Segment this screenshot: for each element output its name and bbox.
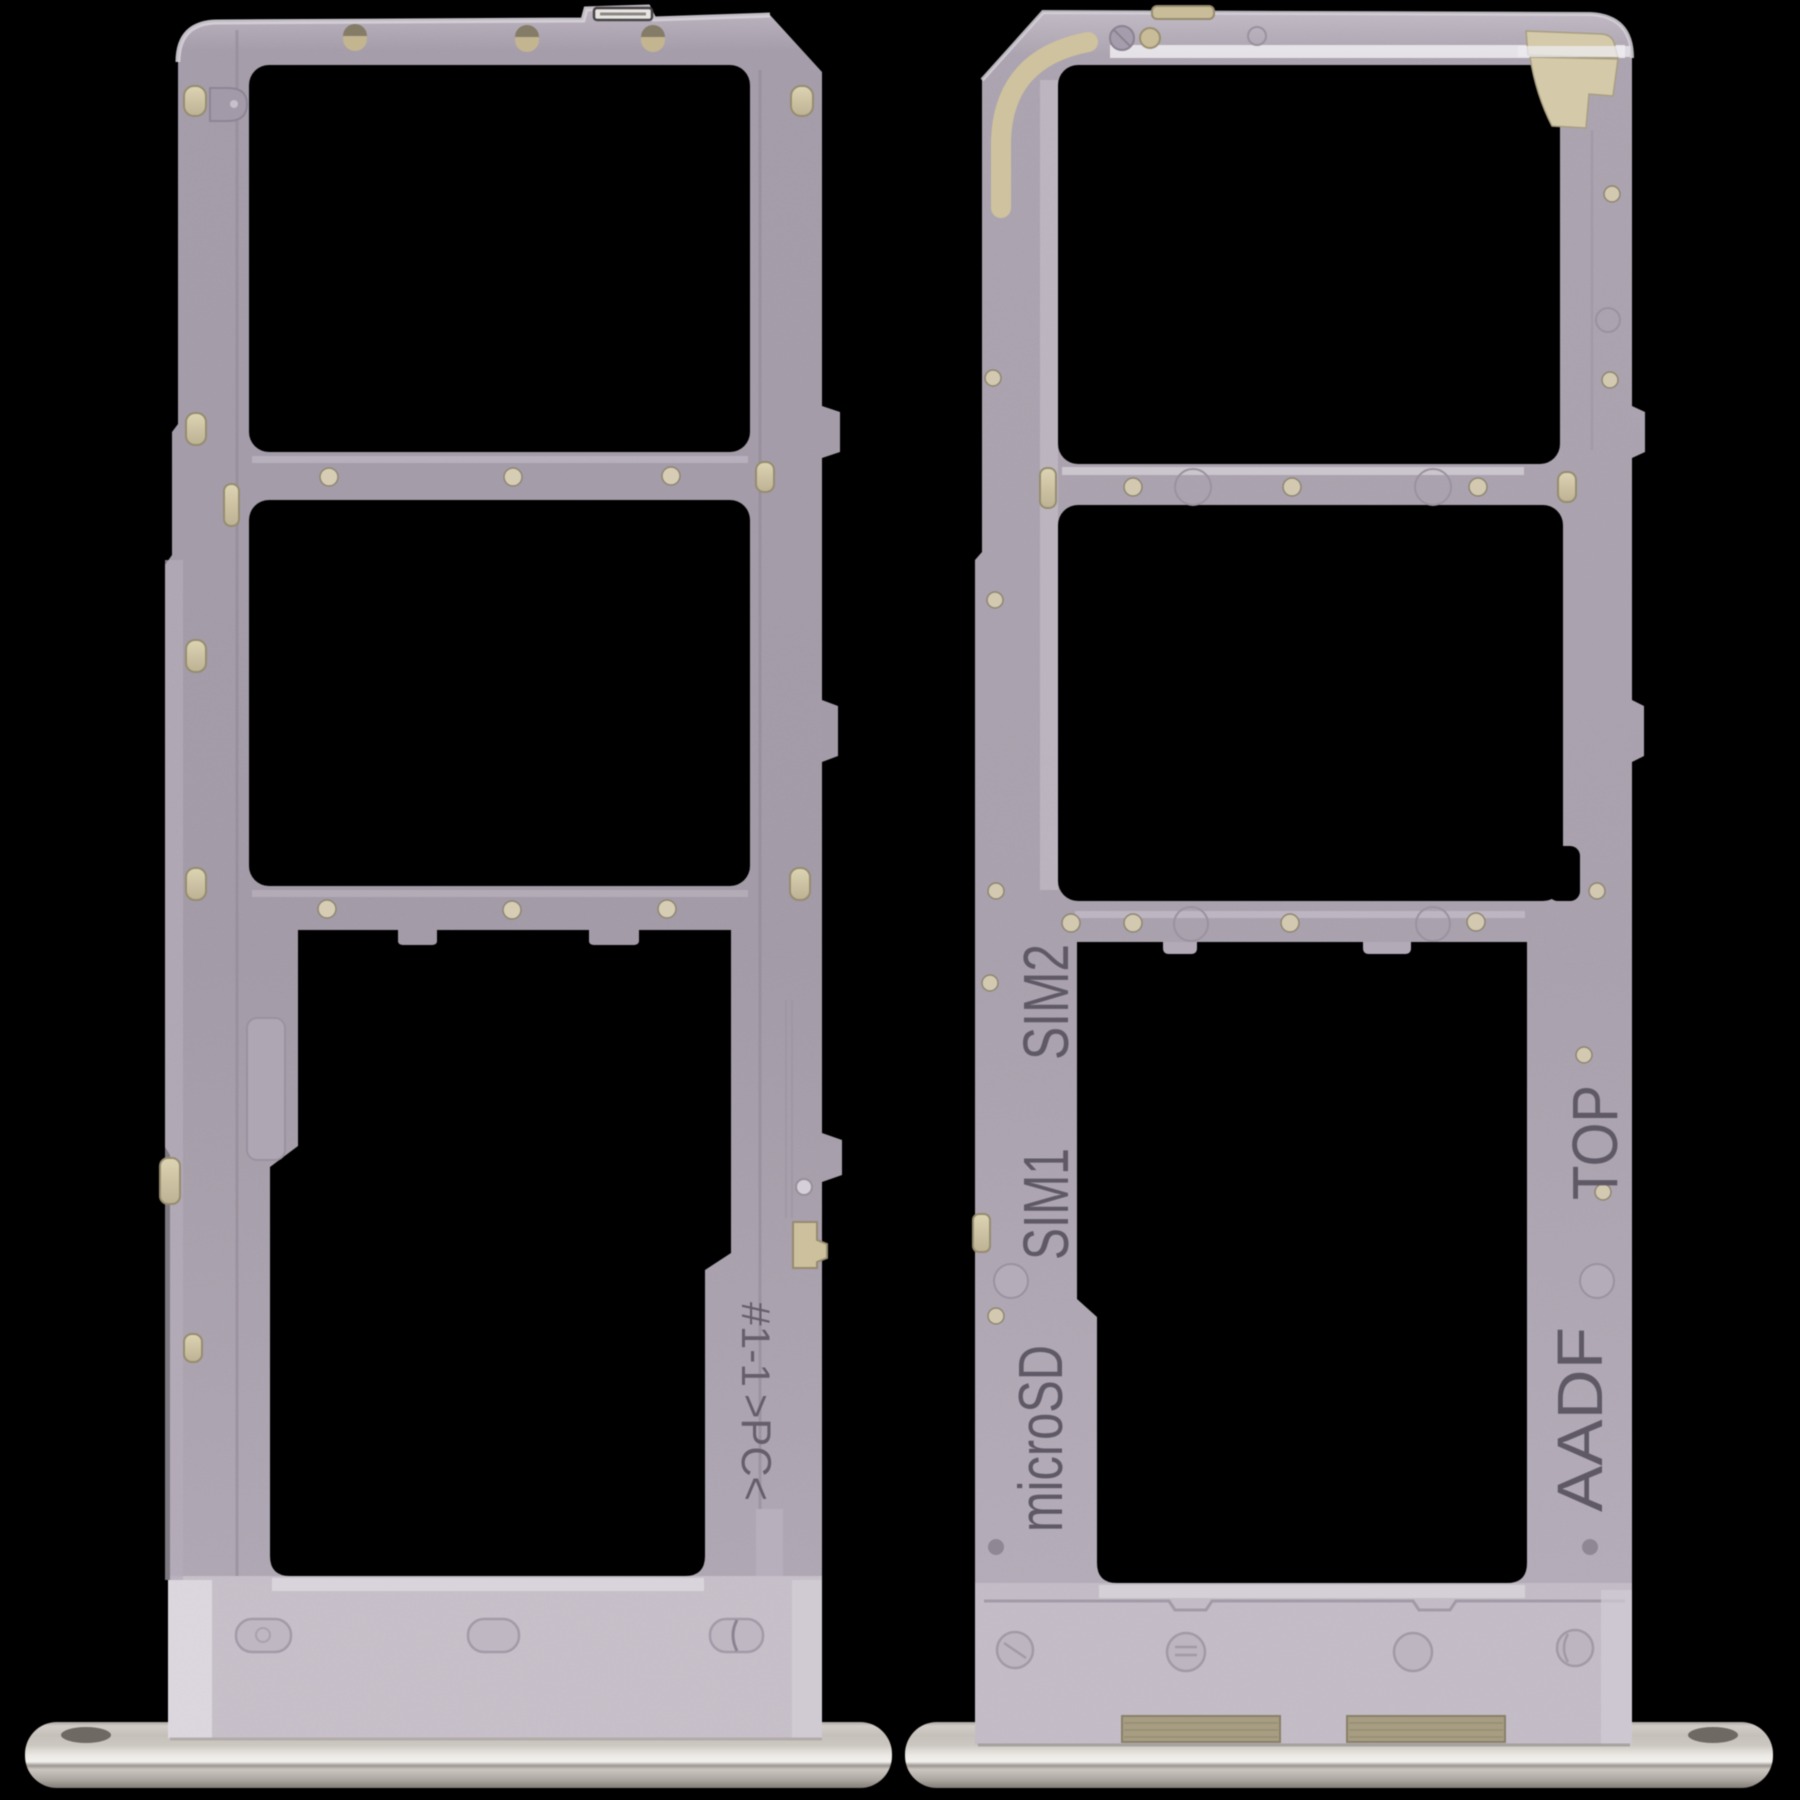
svg-text:microSD: microSD — [1007, 1345, 1076, 1532]
svg-text:SIM1: SIM1 — [1010, 1148, 1082, 1260]
svg-text:#1-1: #1-1 — [733, 1302, 777, 1387]
svg-text:AADF: AADF — [1544, 1327, 1616, 1512]
svg-text:TOP: TOP — [1559, 1085, 1631, 1200]
svg-text:SIM2: SIM2 — [1010, 944, 1082, 1060]
svg-text:>PC<: >PC< — [733, 1394, 780, 1501]
